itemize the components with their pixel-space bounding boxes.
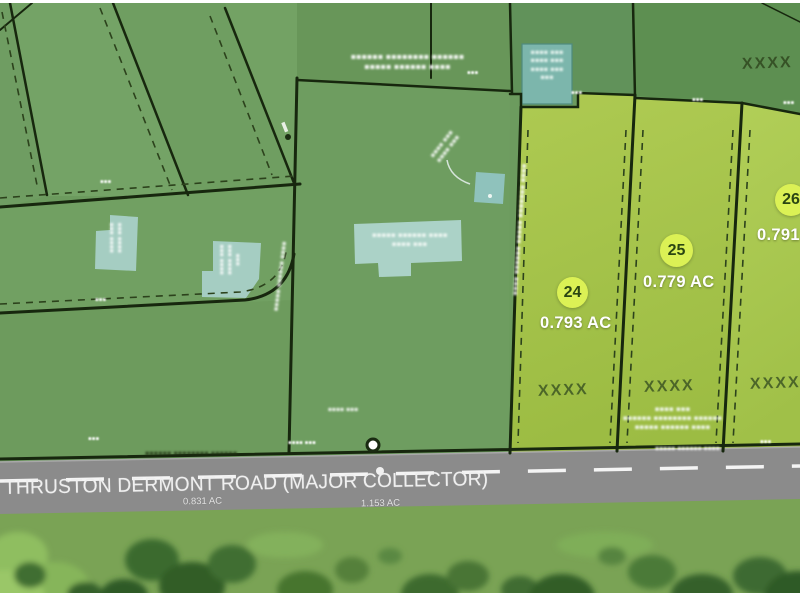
dimension-label: ▪▪▪ [95,297,106,303]
lot-26-xxxx-marker: XXXX [750,374,800,394]
top-white-strip [0,0,800,3]
road-area-label-right: 1.153 AC [361,498,400,510]
illegible-roadside-dark-text: ▪▪▪▪▪▪ ▪▪▪▪▪▪▪▪ ▪▪▪▪▪▪ [145,449,225,457]
survey-point-marker [367,439,379,451]
building-small-square [474,172,505,204]
parcel-lower-left[interactable] [0,300,293,460]
adjacent-parcel-xxxx-marker: XXXX [742,54,793,74]
illegible-building-b-text: ▪▪▪▪ ▪▪▪▪▪▪▪ ▪▪▪▪▪▪ [218,232,241,288]
illegible-label-box-text: ▪▪▪▪ ▪▪▪▪▪▪▪ ▪▪▪▪▪▪▪ ▪▪▪▪▪▪ [524,48,570,82]
dimension-label: ▪▪▪ [100,179,111,185]
bottom-white-strip [0,593,800,600]
lot-24-badge[interactable]: 24 [557,277,588,308]
map-canvas [0,0,800,600]
lot-24-area-label: 0.793 AC [540,314,612,333]
upper-left-parcels[interactable] [0,3,300,208]
illegible-building-a-text: ▪▪▪▪ ▪▪▪▪▪▪▪ ▪▪▪ [108,210,124,266]
dimension-label: ▪▪▪ [760,439,771,445]
lot-26-area-label: 0.791 [757,226,800,245]
lot-25-xxxx-marker: XXXX [644,377,695,397]
illegible-lot25-info-text: ▪▪▪▪ ▪▪▪▪▪▪▪▪▪ ▪▪▪▪▪▪▪▪ ▪▪▪▪▪▪▪▪▪▪▪ ▪▪▪▪… [610,405,735,432]
dimension-label: ▪▪▪ [571,90,582,96]
lot-25-area-label: 0.779 AC [643,273,715,292]
parcel-top-band[interactable] [297,3,510,90]
lot-25-badge[interactable]: 25 [660,234,693,267]
illegible-center-building-text: ▪▪▪▪▪ ▪▪▪▪▪▪ ▪▪▪▪▪▪▪▪ ▪▪▪ [372,231,447,249]
illegible-driveway-easement-text: ▪▪▪▪▪ ▪▪▪▪▪▪ ▪▪▪▪ [655,445,715,453]
lot-26-number: 26 [782,191,800,209]
lot-24-xxxx-marker: XXXX [538,381,589,401]
parcel-map[interactable]: 24 25 26 0.793 AC 0.779 AC 0.791 XXXX XX… [0,0,800,600]
lot-24-number: 24 [564,284,582,302]
illegible-no-curb-text: ▪▪▪▪ ▪▪▪ [322,406,364,414]
line-tick-dark [285,134,291,140]
dimension-label: ▪▪▪ [692,97,703,103]
lot-25-number: 25 [668,242,686,260]
grass-band [0,499,800,593]
dimension-label: ▪▪▪ [467,70,478,76]
dimension-label: ▪▪▪ [88,436,99,442]
lot-26-badge[interactable]: 26 [775,184,800,216]
dimension-label: ▪▪▪ [783,100,794,106]
illegible-owner-text-top: ▪▪▪▪▪▪ ▪▪▪▪▪▪▪▪ ▪▪▪▪▪▪▪▪▪▪▪ ▪▪▪▪▪▪ ▪▪▪▪ [350,52,465,73]
road-area-label-left: 0.831 AC [183,496,222,508]
dimension-label: ▪▪▪▪ ▪▪▪ [288,440,316,446]
